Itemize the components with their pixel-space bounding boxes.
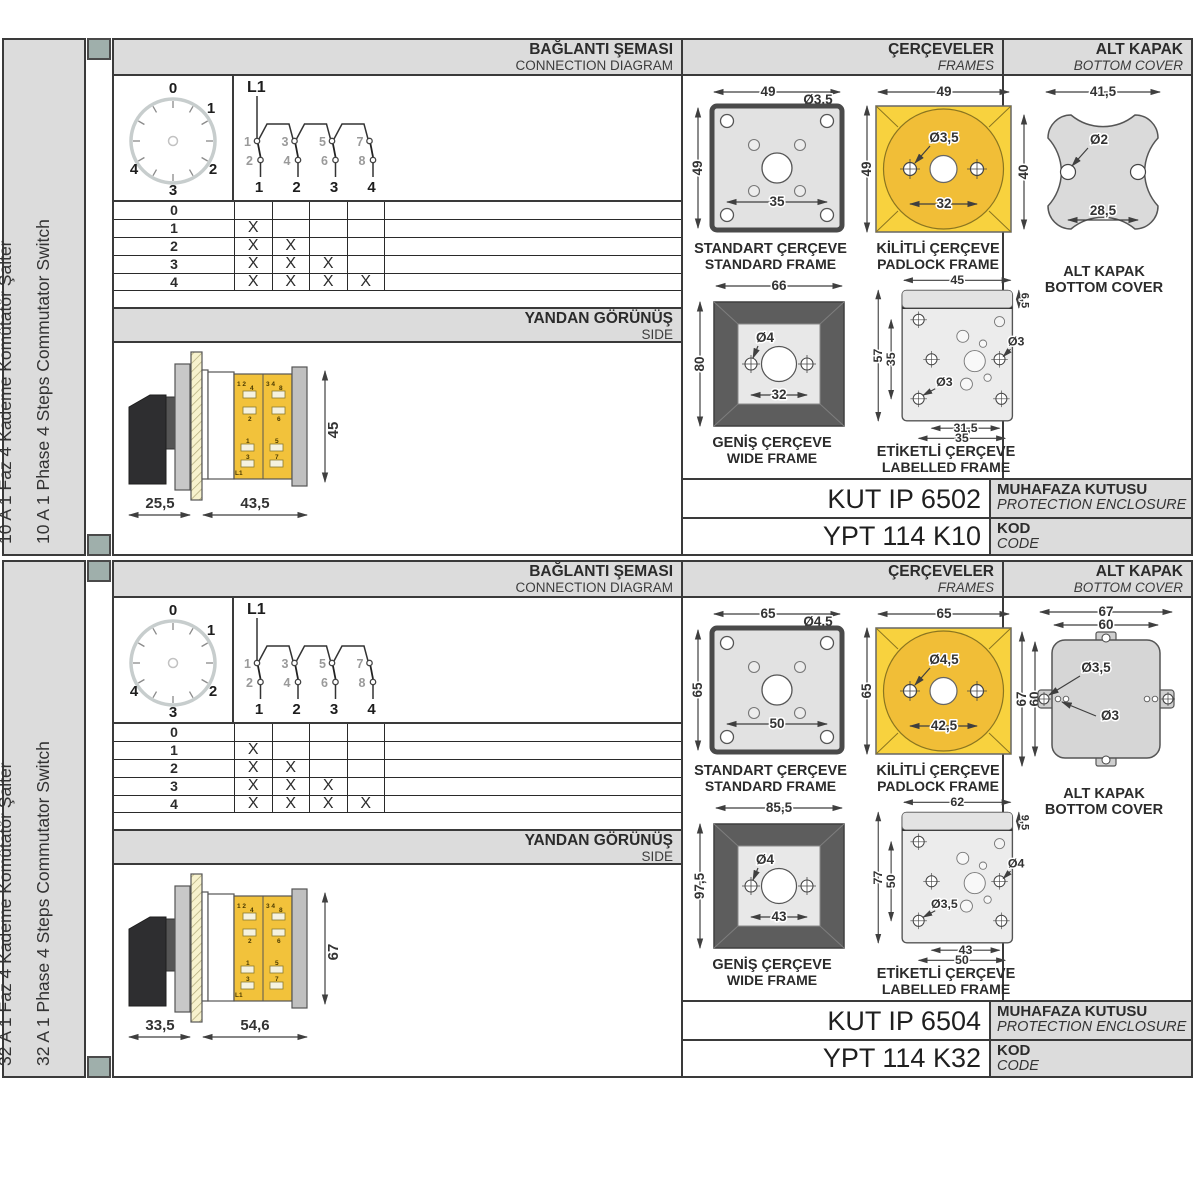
svg-text:6: 6 — [277, 416, 281, 423]
dial-position-2: 2 — [209, 683, 217, 700]
contact-cell — [348, 742, 386, 759]
connection-diagram-header: BAĞLANTI ŞEMASI CONNECTION DIAGRAM — [114, 562, 681, 598]
wide-frame-caption: GENİŞ ÇERÇEVE WIDE FRAME — [686, 435, 858, 467]
lab-hole-inner-dim: Ø3 — [936, 375, 953, 389]
connection-header-tr: BAĞLANTI ŞEMASI — [114, 42, 673, 58]
dial-cell-divider — [232, 598, 234, 722]
step-label: 0 — [114, 202, 235, 219]
enclosure-code-label: MUHAFAZA KUTUSU PROTECTION ENCLOSURE — [989, 1002, 1191, 1039]
table-row: 0 — [114, 202, 681, 220]
step-label: 2 — [114, 760, 235, 777]
table-row: 2 X X — [114, 238, 681, 256]
code-label-en: CODE — [997, 537, 1191, 552]
contact-cell — [273, 724, 311, 741]
step-label: 3 — [114, 256, 235, 273]
lower-terminal-numbers: 2 4 6 8 — [246, 676, 366, 690]
contact-cell: X — [235, 220, 273, 237]
cover-spacing-dim: 28,5 — [1090, 203, 1117, 218]
svg-text:4: 4 — [250, 907, 254, 914]
labelled-frame-name-en: LABELLED FRAME — [858, 982, 1034, 998]
svg-text:5: 5 — [319, 657, 326, 671]
spine-strip — [86, 38, 112, 556]
wide-frame-name-en: WIDE FRAME — [686, 451, 858, 467]
padlock-frame-name-tr: KİLİTLİ ÇERÇEVE — [858, 763, 1018, 779]
contact-cell: X — [310, 274, 348, 291]
wide-frame-drawing: 85,5 97,5 Ø4 43 — [692, 798, 857, 953]
labelled-frame-name-tr: ETİKETLİ ÇERÇEVE — [858, 966, 1034, 982]
output-numbers: 1 2 3 4 — [255, 701, 377, 718]
dial-position-2: 2 — [209, 161, 217, 178]
bottom-cover-drawing-square: 67 60 67 60 — [1014, 604, 1189, 779]
wide-frame-drawing: 66 80 Ø4 32 — [692, 276, 857, 431]
contact-cell — [348, 778, 386, 795]
mounting-panel-hatch — [191, 874, 202, 1022]
table-filler — [385, 238, 681, 255]
frames-header: ÇERÇEVELER FRAMES — [683, 40, 1002, 76]
std-width-dim: 65 — [760, 606, 776, 621]
svg-text:1: 1 — [255, 179, 263, 196]
svg-text:2: 2 — [292, 179, 300, 196]
wide-height-dim: 80 — [692, 356, 707, 371]
output-numbers: 1 2 3 4 — [255, 179, 377, 196]
product-section: 32 A 1 Faz 4 Kademe Komütatör Şalter 32 … — [2, 560, 1193, 1078]
wide-hole-dim: Ø4 — [756, 852, 775, 867]
svg-text:8: 8 — [279, 907, 283, 914]
spine-square-bottom — [87, 534, 111, 556]
wide-width-dim: 85,5 — [766, 800, 793, 815]
side-header-tr: YANDAN GÖRÜNÜŞ — [114, 311, 673, 327]
padlock-frame-name-en: PADLOCK FRAME — [858, 257, 1018, 273]
connection-header-en: CONNECTION DIAGRAM — [114, 58, 673, 73]
table-row: 1 X — [114, 220, 681, 238]
cover-inner-width-dim: 60 — [1098, 617, 1113, 632]
side-view-header: YANDAN GÖRÜNÜŞ SIDE — [114, 829, 681, 865]
rotary-dial-diagram: 0 1 2 3 4 — [115, 77, 231, 199]
spine-square-top — [87, 560, 111, 582]
contact-cell — [348, 238, 386, 255]
pad-width-dim: 65 — [936, 606, 952, 621]
step-contact-table: 0 1 X 2 X X — [114, 724, 681, 813]
contact-cell: X — [235, 742, 273, 759]
dial-position-0: 0 — [169, 602, 177, 619]
svg-text:L1: L1 — [235, 470, 243, 477]
contact-cell — [348, 202, 386, 219]
bottom-cover-name-tr: ALT KAPAK — [1014, 786, 1194, 802]
rotary-dial-diagram: 0 1 2 3 4 — [115, 599, 231, 721]
contact-cell: X — [310, 778, 348, 795]
padlock-frame-name-en: PADLOCK FRAME — [858, 779, 1018, 795]
contact-cell — [310, 220, 348, 237]
table-row: 3 X X X — [114, 778, 681, 796]
svg-text:7: 7 — [357, 657, 364, 671]
svg-text:7: 7 — [275, 976, 279, 983]
contact-cell: X — [310, 256, 348, 273]
sections-root: 10 A 1 Faz 4 Kademe Komütatör Şalter 10 … — [0, 0, 1200, 1200]
contact-cell: X — [273, 796, 311, 813]
side-view-drawing: 1 2 3 4 4 2 8 6 1 3 5 — [116, 867, 676, 1067]
bottom-cover-drawing-clover: 41,5 40 Ø2 28,5 — [1014, 82, 1189, 257]
frames-header-en: FRAMES — [683, 580, 994, 595]
datasheet-panel: BAĞLANTI ŞEMASI CONNECTION DIAGRAM ÇERÇE… — [112, 38, 1193, 556]
frames-header-en: FRAMES — [683, 58, 994, 73]
product-title-english: 32 A 1 Phase 4 Steps Commutator Switch — [33, 741, 54, 1066]
svg-text:1: 1 — [246, 960, 250, 967]
product-title-turkish: 32 A 1 Faz 4 Kademe Komütatör Şalter — [0, 762, 16, 1066]
dial-ticks — [133, 623, 213, 703]
side-header-en: SIDE — [114, 849, 673, 864]
body-depth-dim: 43,5 — [240, 495, 269, 512]
handle-depth-dim: 33,5 — [145, 1017, 174, 1034]
dial-position-3: 3 — [169, 704, 177, 721]
bottom-cover-header: ALT KAPAK BOTTOM COVER — [1004, 562, 1191, 598]
svg-text:3: 3 — [246, 454, 250, 461]
side-view-drawing: 1 2 3 4 4 2 8 6 1 3 5 — [116, 345, 676, 545]
handle-depth-dim: 25,5 — [145, 495, 174, 512]
table-row: 4 X X X X — [114, 796, 681, 814]
svg-text:3 4: 3 4 — [266, 381, 275, 388]
contact-cell — [273, 202, 311, 219]
enclosure-code-label: MUHAFAZA KUTUSU PROTECTION ENCLOSURE — [989, 480, 1191, 517]
contact-schematic: L1 — [236, 76, 679, 200]
table-filler — [385, 220, 681, 237]
side-view-header: YANDAN GÖRÜNÜŞ SIDE — [114, 307, 681, 343]
standard-frame-name-tr: STANDART ÇERÇEVE — [683, 763, 858, 779]
wide-frame-name-tr: GENİŞ ÇERÇEVE — [686, 957, 858, 973]
bottom-cover-caption: ALT KAPAK BOTTOM COVER — [1014, 786, 1194, 818]
bottom-cover-name-tr: ALT KAPAK — [1014, 264, 1194, 280]
svg-text:3: 3 — [330, 701, 338, 718]
padlock-frame-drawing: 49 49 Ø3,5 32 — [860, 80, 1015, 240]
enclosure-label-tr: MUHAFAZA KUTUSU — [997, 1004, 1191, 1020]
dial-ticks — [133, 101, 213, 181]
connection-header-en: CONNECTION DIAGRAM — [114, 580, 673, 595]
padlock-frame-caption: KİLİTLİ ÇERÇEVE PADLOCK FRAME — [858, 241, 1018, 273]
svg-text:8: 8 — [279, 385, 283, 392]
dial-position-0: 0 — [169, 80, 177, 97]
table-row: 3 X X X — [114, 256, 681, 274]
lab-span-outer-dim: 35 — [955, 431, 969, 442]
standard-frame-name-en: STANDARD FRAME — [683, 779, 858, 795]
svg-text:7: 7 — [275, 454, 279, 461]
table-filler — [385, 256, 681, 273]
pad-spacing-dim: 42,5 — [931, 718, 958, 733]
bottom-cover-name-en: BOTTOM COVER — [1014, 802, 1194, 818]
step-label: 2 — [114, 238, 235, 255]
contact-cell: X — [235, 274, 273, 291]
wide-frame-name-en: WIDE FRAME — [686, 973, 858, 989]
bottom-cover-caption: ALT KAPAK BOTTOM COVER — [1014, 264, 1194, 296]
standard-frame-caption: STANDART ÇERÇEVE STANDARD FRAME — [683, 763, 858, 795]
contact-cell: X — [310, 796, 348, 813]
product-sidebar: 10 A 1 Faz 4 Kademe Komütatör Şalter 10 … — [2, 38, 86, 556]
connection-header-tr: BAĞLANTI ŞEMASI — [114, 564, 673, 580]
dial-cell-divider — [232, 76, 234, 200]
svg-text:1: 1 — [246, 438, 250, 445]
switch-side-profile: 1 2 3 4 4 2 8 6 1 3 5 — [129, 874, 307, 1022]
contact-cell: X — [273, 274, 311, 291]
svg-text:4: 4 — [367, 179, 376, 196]
upper-terminal-numbers: 1 3 5 7 — [244, 135, 364, 149]
svg-text:6: 6 — [321, 154, 328, 168]
side-height-dim: 67 — [325, 944, 342, 961]
cover-hole-large-dim: Ø3,5 — [1081, 660, 1111, 675]
contact-cell — [235, 724, 273, 741]
wide-spacing-dim: 43 — [771, 909, 787, 924]
product-title-turkish: 10 A 1 Faz 4 Kademe Komütatör Şalter — [0, 240, 16, 544]
svg-text:8: 8 — [359, 154, 366, 168]
cover-hole-small-dim: Ø3 — [1101, 708, 1120, 723]
contact-cell: X — [273, 760, 311, 777]
svg-text:1 2: 1 2 — [237, 381, 246, 388]
step-label: 1 — [114, 742, 235, 759]
spine-strip — [86, 560, 112, 1078]
contact-cell — [273, 742, 311, 759]
frames-header-tr: ÇERÇEVELER — [683, 42, 994, 58]
code-label-en: CODE — [997, 1059, 1191, 1074]
contact-cell: X — [273, 238, 311, 255]
svg-text:3: 3 — [282, 135, 289, 149]
contact-cell — [348, 256, 386, 273]
pad-hole-dim: Ø3,5 — [929, 130, 959, 145]
upper-terminal-numbers: 1 3 5 7 — [244, 657, 364, 671]
contact-cell: X — [273, 256, 311, 273]
enclosure-label-tr: MUHAFAZA KUTUSU — [997, 482, 1191, 498]
dial-position-1: 1 — [207, 622, 215, 639]
standard-frame-caption: STANDART ÇERÇEVE STANDARD FRAME — [683, 241, 858, 273]
contact-cell — [273, 220, 311, 237]
contact-cell: X — [348, 796, 386, 813]
product-code-label: KOD CODE — [989, 1041, 1191, 1076]
column-divider-frames — [681, 562, 683, 1076]
product-title-english: 10 A 1 Phase 4 Steps Commutator Switch — [33, 219, 54, 544]
side-header-en: SIDE — [114, 327, 673, 342]
contact-cell: X — [235, 796, 273, 813]
step-label: 3 — [114, 778, 235, 795]
lab-height-dim: 77 — [871, 871, 885, 885]
contact-cell: X — [235, 256, 273, 273]
standard-frame-name-en: STANDARD FRAME — [683, 257, 858, 273]
frames-header: ÇERÇEVELER FRAMES — [683, 562, 1002, 598]
code-label-tr: KOD — [997, 1043, 1191, 1059]
schematic-bridges — [259, 124, 368, 139]
lab-hole-right-dim: Ø3 — [1008, 335, 1025, 349]
svg-text:2: 2 — [292, 701, 300, 718]
lab-holespan-dim: 50 — [884, 874, 898, 888]
catalog-page: 10 A 1 Faz 4 Kademe Komütatör Şalter 10 … — [0, 0, 1200, 1200]
code-label-tr: KOD — [997, 521, 1191, 537]
table-row: 0 — [114, 724, 681, 742]
pad-height-dim: 65 — [860, 683, 874, 699]
svg-text:3: 3 — [330, 179, 338, 196]
svg-text:4: 4 — [284, 676, 291, 690]
frames-header-tr: ÇERÇEVELER — [683, 564, 994, 580]
svg-text:5: 5 — [319, 135, 326, 149]
table-row: 4 X X X X — [114, 274, 681, 292]
enclosure-label-en: PROTECTION ENCLOSURE — [997, 498, 1191, 513]
product-code: YPT 114 K10 — [683, 519, 989, 554]
step-label: 0 — [114, 724, 235, 741]
padlock-frame-drawing: 65 65 Ø4,5 42,5 — [860, 602, 1015, 762]
bottom-cover-name-en: BOTTOM COVER — [1014, 280, 1194, 296]
svg-text:1: 1 — [244, 135, 251, 149]
pad-height-dim: 49 — [860, 161, 874, 176]
svg-text:5: 5 — [275, 438, 279, 445]
contact-cell: X — [235, 778, 273, 795]
table-filler — [385, 274, 681, 291]
svg-text:3 4: 3 4 — [266, 903, 275, 910]
svg-text:6: 6 — [321, 676, 328, 690]
table-filler — [385, 778, 681, 795]
contact-cell — [235, 202, 273, 219]
svg-text:8: 8 — [359, 676, 366, 690]
labelled-frame-caption: ETİKETLİ ÇERÇEVE LABELLED FRAME — [858, 966, 1034, 998]
contact-cell: X — [235, 238, 273, 255]
wide-height-dim: 97,5 — [692, 872, 707, 899]
svg-text:4: 4 — [367, 701, 376, 718]
std-width-dim: 49 — [760, 84, 775, 99]
lab-hole-inner-dim: Ø3,5 — [931, 897, 958, 911]
column-divider-frames — [681, 40, 683, 554]
svg-text:4: 4 — [250, 385, 254, 392]
product-section: 10 A 1 Faz 4 Kademe Komütatör Şalter 10 … — [2, 38, 1193, 556]
contact-cell — [310, 742, 348, 759]
lab-width-dim: 45 — [950, 273, 964, 287]
step-contact-table: 0 1 X 2 X X — [114, 202, 681, 291]
dial-position-4: 4 — [130, 683, 139, 700]
contact-schematic: L1 — [236, 598, 679, 722]
pad-hole-dim: Ø4,5 — [929, 652, 959, 667]
step-label: 4 — [114, 796, 235, 813]
labelled-frame-name-en: LABELLED FRAME — [858, 460, 1034, 476]
lower-terminal-numbers: 2 4 6 8 — [246, 154, 366, 168]
table-row: 1 X — [114, 742, 681, 760]
cover-height-dim: 40 — [1016, 164, 1031, 179]
step-label: 1 — [114, 220, 235, 237]
svg-text:4: 4 — [284, 154, 291, 168]
table-filler — [385, 760, 681, 777]
schematic-bridges — [259, 646, 368, 661]
table-row: 2 X X — [114, 760, 681, 778]
std-spacing-dim: 50 — [769, 716, 784, 731]
wide-width-dim: 66 — [771, 278, 787, 293]
std-spacing-dim: 35 — [769, 194, 785, 209]
labelled-frame-name-tr: ETİKETLİ ÇERÇEVE — [858, 444, 1034, 460]
lab-hole-right-dim: Ø4 — [1008, 857, 1025, 871]
cover-header-en: BOTTOM COVER — [1004, 580, 1183, 595]
svg-text:5: 5 — [275, 960, 279, 967]
dial-position-1: 1 — [207, 100, 215, 117]
step-label: 4 — [114, 274, 235, 291]
labelled-frame-drawing: 62 9,5 77 50 — [864, 794, 1034, 964]
contact-cell — [310, 202, 348, 219]
svg-text:1: 1 — [255, 701, 263, 718]
enclosure-code: KUT IP 6504 — [683, 1003, 989, 1040]
switch-side-profile: 1 2 3 4 4 2 8 6 1 3 5 — [129, 352, 307, 500]
cover-width-dim: 41,5 — [1090, 84, 1117, 99]
wide-spacing-dim: 32 — [771, 387, 786, 402]
std-height-dim: 49 — [690, 160, 705, 175]
cover-header-tr: ALT KAPAK — [1004, 564, 1183, 580]
enclosure-code: KUT IP 6502 — [683, 481, 989, 518]
connection-diagram-header: BAĞLANTI ŞEMASI CONNECTION DIAGRAM — [114, 40, 681, 76]
contact-cell — [310, 724, 348, 741]
spine-square-bottom — [87, 1056, 111, 1078]
schematic-feed-label: L1 — [247, 79, 266, 96]
mounting-panel-hatch — [191, 352, 202, 500]
contact-cell: X — [235, 760, 273, 777]
standard-frame-drawing: 49 Ø3,5 49 35 — [690, 80, 855, 240]
contact-cell — [348, 220, 386, 237]
cover-header-en: BOTTOM COVER — [1004, 58, 1183, 73]
svg-text:L1: L1 — [235, 992, 243, 999]
table-filler — [385, 202, 681, 219]
svg-text:2: 2 — [246, 154, 253, 168]
body-depth-dim: 54,6 — [240, 1017, 269, 1034]
cover-header-tr: ALT KAPAK — [1004, 42, 1183, 58]
standard-frame-name-tr: STANDART ÇERÇEVE — [683, 241, 858, 257]
contact-cell — [310, 238, 348, 255]
svg-text:2: 2 — [246, 676, 253, 690]
lab-holespan-dim: 35 — [884, 352, 898, 366]
svg-text:3: 3 — [282, 657, 289, 671]
svg-text:2: 2 — [248, 938, 252, 945]
bottom-cover-header: ALT KAPAK BOTTOM COVER — [1004, 40, 1191, 76]
lab-span-outer-dim: 50 — [955, 953, 969, 964]
wide-frame-name-tr: GENİŞ ÇERÇEVE — [686, 435, 858, 451]
svg-text:7: 7 — [357, 135, 364, 149]
contact-cell — [348, 760, 386, 777]
labelled-frame-drawing: 45 6,5 57 35 — [864, 272, 1034, 442]
pad-width-dim: 49 — [936, 84, 951, 99]
standard-frame-drawing: 65 Ø4,5 65 50 — [690, 602, 855, 762]
lab-width-dim: 62 — [950, 795, 964, 809]
svg-text:2: 2 — [248, 416, 252, 423]
padlock-frame-name-tr: KİLİTLİ ÇERÇEVE — [858, 241, 1018, 257]
side-height-dim: 45 — [325, 422, 342, 439]
table-filler — [385, 742, 681, 759]
wide-hole-dim: Ø4 — [756, 330, 775, 345]
enclosure-label-en: PROTECTION ENCLOSURE — [997, 1020, 1191, 1035]
wide-frame-caption: GENİŞ ÇERÇEVE WIDE FRAME — [686, 957, 858, 989]
datasheet-panel: BAĞLANTI ŞEMASI CONNECTION DIAGRAM ÇERÇE… — [112, 560, 1193, 1078]
padlock-frame-caption: KİLİTLİ ÇERÇEVE PADLOCK FRAME — [858, 763, 1018, 795]
dial-position-4: 4 — [130, 161, 139, 178]
lab-height-dim: 57 — [871, 349, 885, 363]
labelled-frame-caption: ETİKETLİ ÇERÇEVE LABELLED FRAME — [858, 444, 1034, 476]
svg-text:1: 1 — [244, 657, 251, 671]
contact-cell: X — [348, 274, 386, 291]
table-filler — [385, 724, 681, 741]
contact-cell: X — [273, 778, 311, 795]
std-height-dim: 65 — [690, 682, 705, 698]
svg-text:1 2: 1 2 — [237, 903, 246, 910]
spine-square-top — [87, 38, 111, 60]
side-header-tr: YANDAN GÖRÜNÜŞ — [114, 833, 673, 849]
schematic-feed-label: L1 — [247, 601, 266, 618]
svg-text:6: 6 — [277, 938, 281, 945]
contact-cell — [310, 760, 348, 777]
contact-cell — [348, 724, 386, 741]
dial-position-3: 3 — [169, 182, 177, 199]
pad-spacing-dim: 32 — [936, 196, 951, 211]
product-code: YPT 114 K32 — [683, 1041, 989, 1076]
product-code-label: KOD CODE — [989, 519, 1191, 554]
table-filler — [385, 796, 681, 813]
product-sidebar: 32 A 1 Faz 4 Kademe Komütatör Şalter 32 … — [2, 560, 86, 1078]
svg-text:3: 3 — [246, 976, 250, 983]
cover-hole-dim: Ø2 — [1090, 132, 1108, 147]
